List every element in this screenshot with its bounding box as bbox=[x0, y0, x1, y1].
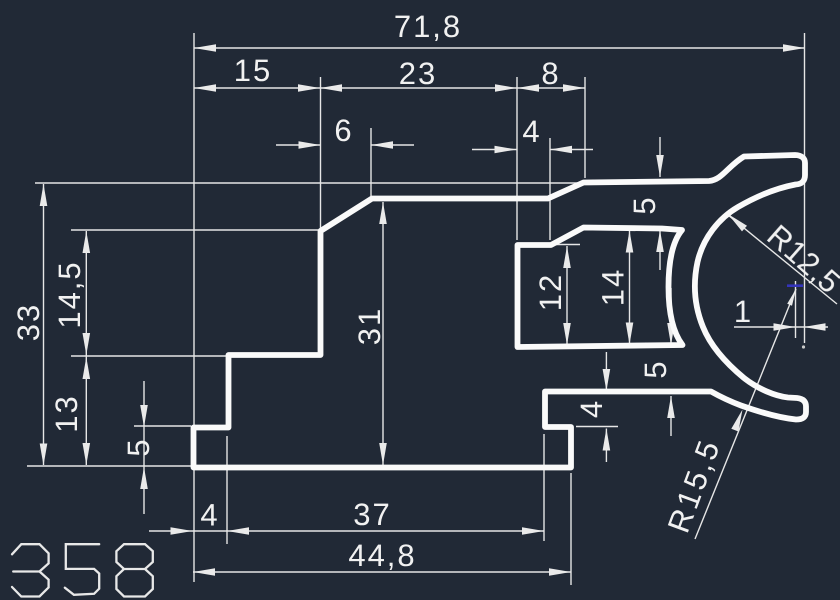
svg-text:71,8: 71,8 bbox=[394, 9, 462, 44]
svg-text:5: 5 bbox=[638, 359, 673, 378]
svg-text:14,5: 14,5 bbox=[52, 260, 87, 328]
svg-text:14: 14 bbox=[596, 268, 631, 306]
svg-text:23: 23 bbox=[399, 56, 437, 91]
svg-text:6: 6 bbox=[334, 113, 353, 148]
svg-text:33: 33 bbox=[11, 303, 46, 341]
svg-text:15: 15 bbox=[234, 53, 272, 88]
svg-text:4: 4 bbox=[522, 114, 541, 149]
svg-text:44,8: 44,8 bbox=[348, 538, 416, 573]
svg-text:5: 5 bbox=[627, 195, 662, 214]
svg-text:5: 5 bbox=[121, 437, 156, 456]
svg-text:1: 1 bbox=[734, 294, 753, 329]
svg-text:13: 13 bbox=[49, 394, 84, 432]
svg-text:31: 31 bbox=[352, 307, 387, 345]
svg-text:37: 37 bbox=[353, 497, 391, 532]
svg-text:4: 4 bbox=[200, 498, 219, 533]
svg-text:4: 4 bbox=[574, 399, 609, 418]
svg-text:8: 8 bbox=[541, 56, 560, 91]
svg-text:12: 12 bbox=[533, 273, 568, 311]
